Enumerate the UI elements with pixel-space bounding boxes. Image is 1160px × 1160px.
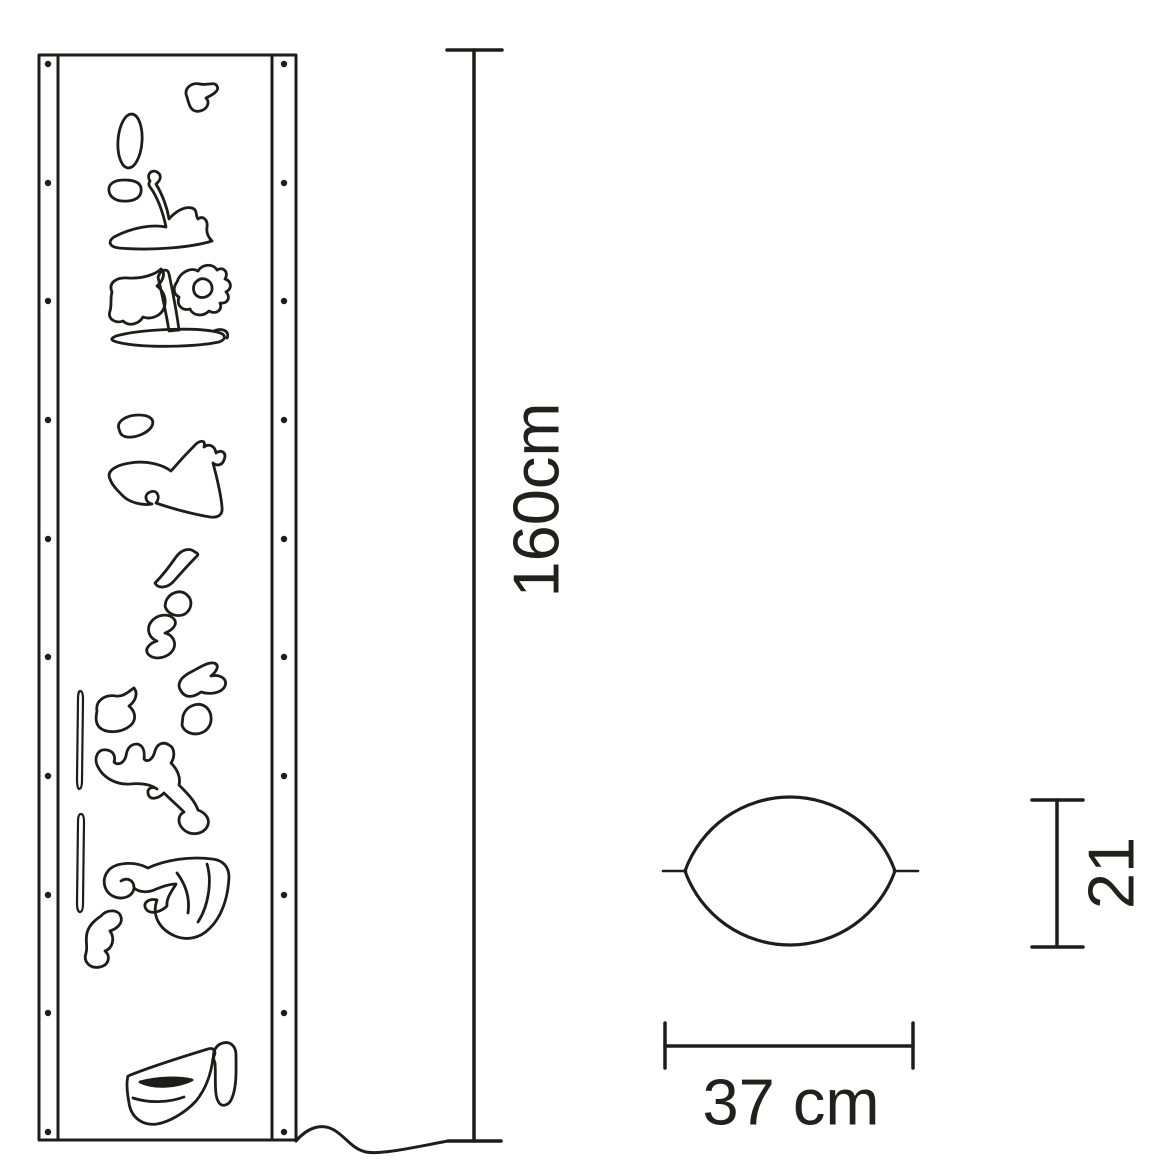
rivet [281,417,287,423]
rivet [281,654,287,660]
width-dimension-label: 37 cm [702,1070,879,1135]
rivet [45,61,51,67]
lens-outline [685,797,895,945]
rivet [45,536,51,542]
cutout-oval [116,113,144,169]
rivet [281,536,287,542]
rivet [281,61,287,67]
rivet [45,892,51,898]
top-view-lens [663,797,918,945]
cutout-small-leaf [119,415,153,437]
rivet [45,654,51,660]
cutout-s-blob [147,615,176,658]
cutout-boot [85,911,121,967]
rivet [281,180,287,186]
drawing-lines [39,50,1083,1153]
ground-break-line [296,1127,448,1153]
rivet [281,892,287,898]
height-dimension [447,50,502,1141]
cutout-leaf-large [104,858,229,938]
rivet [281,1010,287,1016]
cutout-blob [109,180,141,201]
cutout-animal [109,441,225,517]
cutout-bird-small [96,688,136,732]
hieroglyph-cutouts [77,84,236,1125]
rivet [281,298,287,304]
cutout-boat-stem [110,171,212,249]
cutout-leaf-vein-1 [198,864,209,922]
drawing-svg [0,0,1160,1160]
rivet [45,1129,51,1135]
lamp-technical-drawing: 160cm 37 cm 21 [0,0,1160,1160]
cutout-ribbon [155,550,198,588]
rivet [45,298,51,304]
cutout-reed-1 [77,691,83,789]
cutout-flag-top [186,84,218,112]
rivet [45,180,51,186]
cutout-cup-wing [213,1043,236,1106]
rivet [45,773,51,779]
cutout-cluster-hole [193,279,212,298]
cutout-cup-inner-line [133,1097,184,1102]
width-dimension [665,1023,913,1068]
cutout-leaf-spiral [121,879,134,888]
cutout-flag-mid [179,663,226,696]
depth-dimension-label: 21 [1079,837,1144,909]
rivet [281,1129,287,1135]
height-dimension-label: 160cm [504,402,569,597]
cutout-drop [165,592,191,616]
cutout-drop-right [182,704,211,733]
cutout-cup-slit [140,1078,192,1086]
cutout-cluster [174,265,230,315]
rivet [45,1010,51,1016]
cutout-reed-2 [77,814,84,912]
cutout-leaf-vein-2 [177,873,189,913]
cutout-crown [96,743,208,833]
rivet [281,773,287,779]
rivet [45,417,51,423]
